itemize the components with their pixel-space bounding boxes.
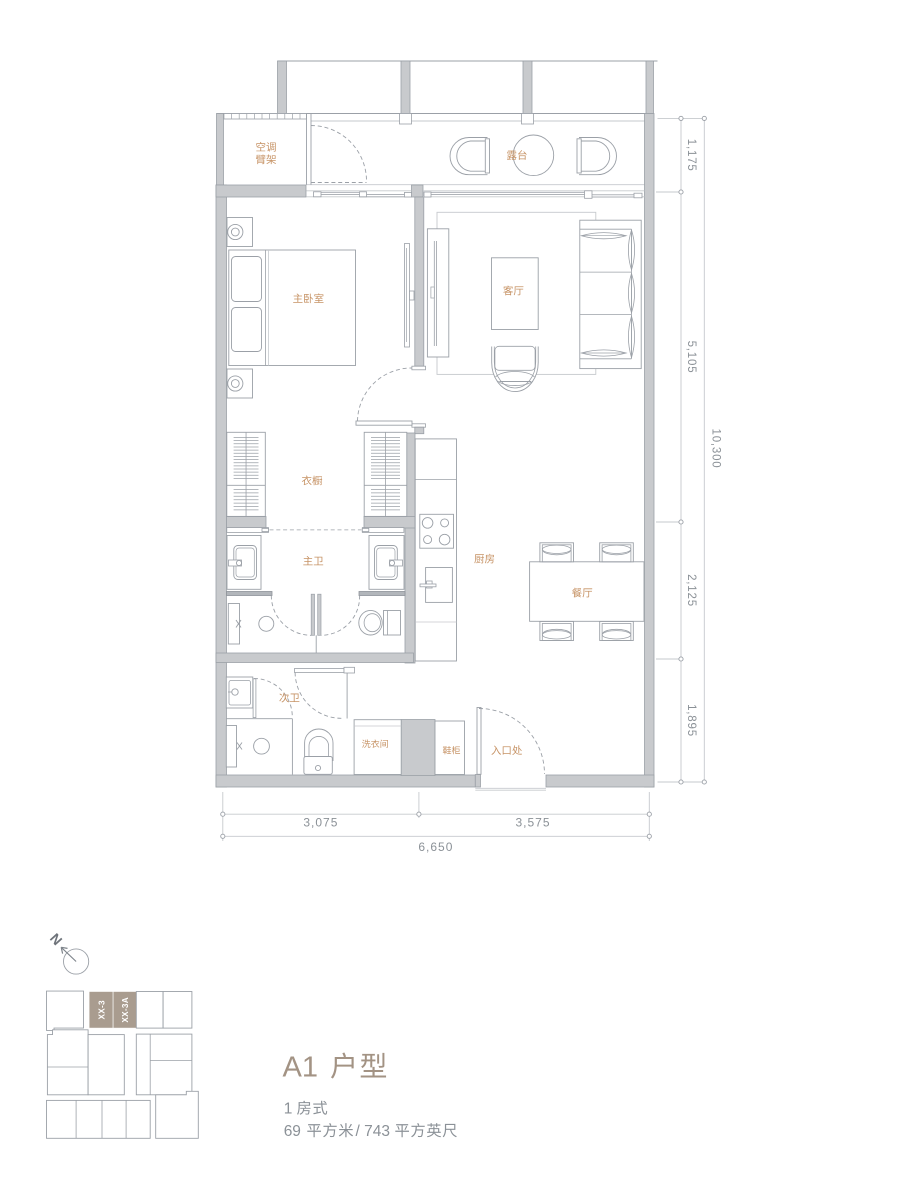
svg-text:5,105: 5,105	[685, 341, 697, 374]
svg-text:XX-3: XX-3	[98, 1000, 107, 1020]
svg-text:/ 743: / 743	[356, 1123, 390, 1140]
svg-text:69: 69	[284, 1123, 301, 1140]
svg-text:1,175: 1,175	[685, 139, 697, 172]
svg-text:3,075: 3,075	[303, 816, 338, 830]
svg-text:3,575: 3,575	[515, 816, 550, 830]
svg-text:1: 1	[284, 1101, 293, 1118]
svg-text:XX-3A: XX-3A	[121, 997, 130, 1023]
svg-text:6,650: 6,650	[418, 840, 453, 854]
svg-text:10,300: 10,300	[710, 429, 722, 469]
svg-text:A1: A1	[283, 1051, 318, 1083]
svg-text:1,895: 1,895	[685, 704, 697, 737]
svg-text:2,125: 2,125	[685, 574, 697, 607]
